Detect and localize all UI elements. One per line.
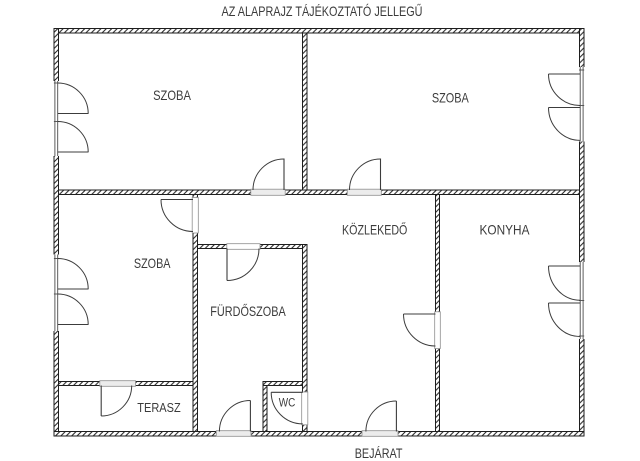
svg-text:WC: WC [279,395,296,409]
svg-text:SZOBA: SZOBA [134,255,171,271]
svg-text:SZOBA: SZOBA [432,89,469,105]
svg-text:FÜRDŐSZOBA: FÜRDŐSZOBA [210,302,286,319]
svg-text:TERASZ: TERASZ [137,400,180,415]
svg-text:KÖZLEKEDŐ: KÖZLEKEDŐ [342,220,407,237]
svg-text:BEJÁRAT: BEJÁRAT [355,445,403,461]
svg-text:SZOBA: SZOBA [153,87,191,103]
svg-text:KONYHA: KONYHA [480,221,530,237]
svg-text:AZ ALAPRAJZ TÁJÉKOZTATÓ JELLEG: AZ ALAPRAJZ TÁJÉKOZTATÓ JELLEGŰ [222,3,423,19]
